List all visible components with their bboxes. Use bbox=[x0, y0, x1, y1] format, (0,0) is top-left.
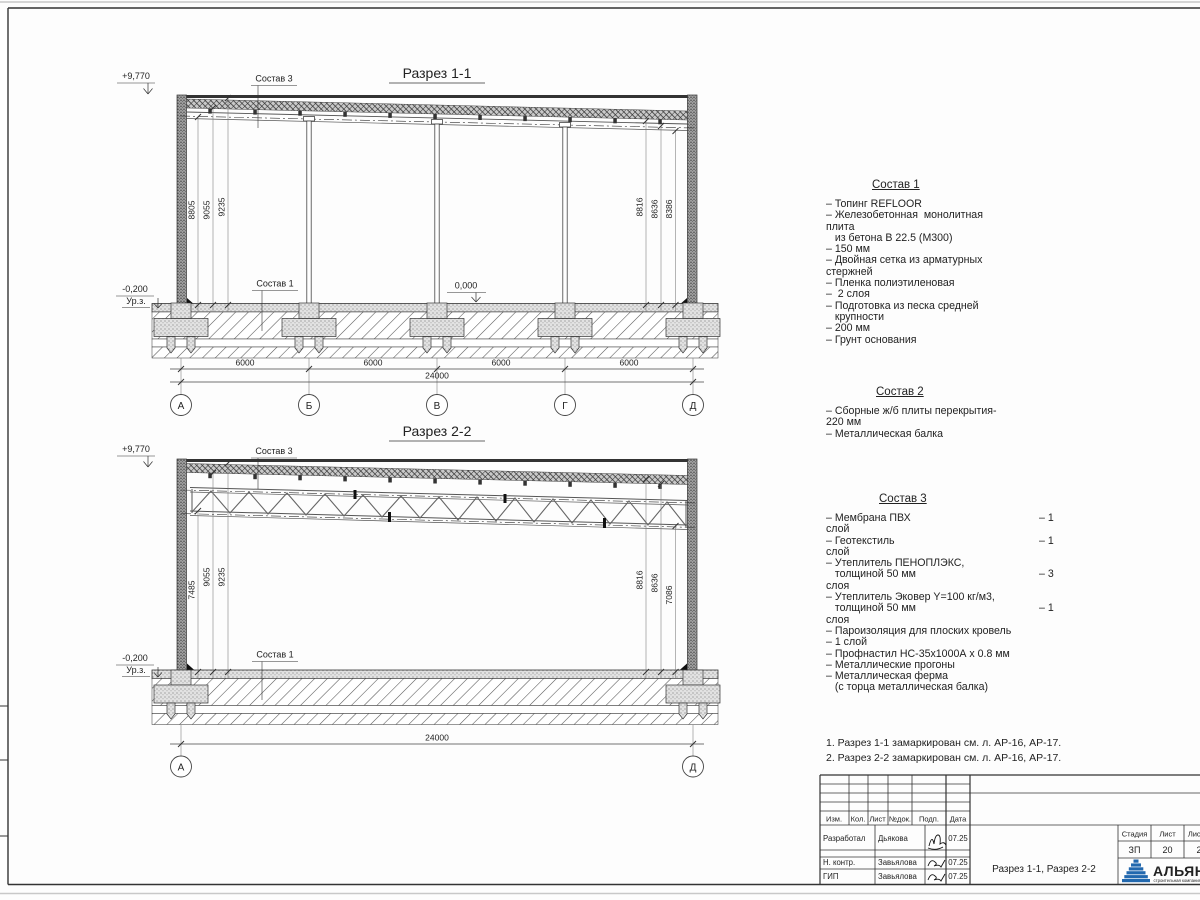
col-izm: Изм. bbox=[826, 815, 842, 824]
roof-slab bbox=[187, 99, 688, 120]
composition-line: – Железобетонная монолитная bbox=[826, 210, 1058, 221]
sostav-3-heading: Состав 3 bbox=[826, 493, 1058, 505]
row1-date: 07.25 bbox=[948, 834, 968, 843]
elev-top-mark: +9,770 bbox=[122, 444, 150, 454]
span-dim-2: 6000 bbox=[364, 358, 383, 368]
dim-left-2: 9055 bbox=[202, 200, 212, 219]
sostav-1-block: Состав 1 – Топинг REFLOOR– Железобетонна… bbox=[826, 179, 1058, 346]
sostav-2-lines: – Сборные ж/б плиты перекрытия-220 мм– М… bbox=[826, 406, 1058, 440]
sheet-canvas: Разрез 1-1 bbox=[0, 0, 1200, 900]
axis-v: В bbox=[434, 401, 441, 412]
section2-callouts: Состав 3 Состав 1 bbox=[251, 446, 298, 700]
composition-line: – Геотекстиль– 1 bbox=[826, 536, 1058, 547]
sostav3-callout: Состав 3 bbox=[255, 446, 292, 456]
row3-role: ГИП bbox=[823, 872, 838, 881]
total-dim: 24000 bbox=[425, 371, 449, 381]
section1-building bbox=[177, 95, 697, 310]
row3-name: Завьялова bbox=[878, 872, 917, 881]
ground-level-label: Ур.з. bbox=[126, 665, 145, 675]
section2-grid-axes: А Д bbox=[171, 756, 704, 777]
sostav-1-lines: – Топинг REFLOOR– Железобетонная монолит… bbox=[826, 199, 1058, 346]
sostav1-callout: Состав 1 bbox=[256, 279, 293, 289]
span-dim-4: 6000 bbox=[620, 358, 639, 368]
section-1-1: Разрез 1-1 bbox=[116, 65, 720, 416]
axis-a: А bbox=[178, 763, 185, 774]
section2-ground bbox=[152, 670, 720, 725]
dim-right-2: 8636 bbox=[650, 573, 660, 592]
dim-left-1: 8805 bbox=[187, 200, 197, 219]
composition-line: – Мембрана ПВХ– 1 bbox=[826, 513, 1058, 524]
sostav1-callout: Состав 1 bbox=[256, 650, 293, 660]
section1-bottom-dims: 6000 6000 6000 6000 24000 bbox=[170, 358, 704, 395]
row2-name: Завьялова bbox=[878, 858, 917, 867]
steel-truss bbox=[181, 488, 695, 530]
floor-slab bbox=[152, 670, 718, 679]
sostav-2-block: Состав 2 – Сборные ж/б плиты перекрытия-… bbox=[826, 386, 1058, 440]
composition-line: толщиной 50 мм– 1 bbox=[826, 603, 1058, 614]
dim-right-1: 8816 bbox=[635, 570, 645, 589]
section2-building bbox=[177, 459, 697, 676]
dim-left-3: 9235 bbox=[217, 197, 227, 216]
section2-bottom-dims: 24000 bbox=[170, 725, 704, 756]
wall-right bbox=[688, 459, 698, 676]
dim-right-3: 7086 bbox=[664, 585, 674, 604]
section1-ground bbox=[152, 303, 720, 358]
sheet-header: Лист bbox=[1159, 830, 1176, 839]
axis-g: Г bbox=[562, 401, 568, 412]
wall-right bbox=[688, 95, 698, 310]
signature-row3 bbox=[928, 874, 945, 881]
elev-minus-mark: -0,200 bbox=[122, 284, 148, 294]
row2-role: Н. контр. bbox=[823, 858, 855, 867]
company-logo-text: АЛЬЯНС bbox=[1153, 863, 1200, 879]
axis-d: Д bbox=[690, 401, 697, 412]
section2-elevations: +9,770 -0,200 Ур.з. bbox=[116, 444, 162, 677]
section2-title: Разрез 2-2 bbox=[403, 423, 472, 439]
sostav-3-lines: – Мембрана ПВХ– 1слой– Геотекстиль– 1сло… bbox=[826, 513, 1058, 694]
roof-slab bbox=[187, 464, 688, 485]
row1-role: Разработал bbox=[823, 834, 866, 843]
col-kol: Кол. bbox=[851, 815, 866, 824]
section-2-2: Разрез 2-2 bbox=[116, 423, 720, 777]
document-title: Разрез 1-1, Разрез 2-2 bbox=[992, 864, 1096, 875]
drawing-sheet: Разрез 1-1 bbox=[0, 0, 1200, 900]
dim-left-1: 7485 bbox=[187, 580, 197, 599]
company-logo-icon bbox=[1122, 860, 1150, 883]
col-list: Лист bbox=[869, 815, 886, 824]
elev-zero-mark: 0,000 bbox=[455, 281, 478, 291]
stage-header: Стадия bbox=[1122, 830, 1148, 839]
composition-line: – Грунт основания bbox=[826, 335, 1058, 346]
col-podp: Подп. bbox=[919, 815, 939, 824]
section1-grid-axes: А Б В Г Д bbox=[171, 395, 704, 416]
col-ndok: №док. bbox=[889, 815, 911, 824]
row1-name: Дьякова bbox=[878, 834, 908, 843]
sostav3-callout: Состав 3 bbox=[255, 74, 292, 84]
axis-b: Б bbox=[306, 401, 313, 412]
section2-vertical-dims bbox=[198, 463, 676, 678]
sheets-value: 2 bbox=[1196, 845, 1200, 855]
dim-left-3: 9235 bbox=[217, 567, 227, 586]
ground-level-label: Ур.з. bbox=[126, 296, 145, 306]
title-block: Изм. Кол. Лист №док. Подп. Дата Разработ… bbox=[820, 775, 1200, 885]
span-dim-3: 6000 bbox=[492, 358, 511, 368]
axis-a: А bbox=[178, 401, 185, 412]
interior-columns bbox=[304, 117, 571, 306]
signature-row1 bbox=[928, 835, 946, 849]
composition-line: – Металлическая балка bbox=[826, 429, 1058, 440]
sostav-3-block: Состав 3 – Мембрана ПВХ– 1слой– Геотекст… bbox=[826, 493, 1058, 694]
note-line-2: 2. Разрез 2-2 замаркирован см. л. АР-16,… bbox=[826, 751, 1061, 766]
row2-date: 07.25 bbox=[948, 858, 968, 867]
composition-line: толщиной 50 мм– 3 bbox=[826, 569, 1058, 580]
elev-top-mark: +9,770 bbox=[122, 71, 150, 81]
total-dim: 24000 bbox=[425, 733, 449, 743]
wall-left bbox=[177, 459, 187, 676]
elev-minus-mark: -0,200 bbox=[122, 653, 148, 663]
dim-right-2: 8636 bbox=[650, 199, 660, 218]
signature-row2 bbox=[928, 860, 945, 867]
sheet-notes: 1. Разрез 1-1 замаркирован см. л. АР-16,… bbox=[826, 736, 1061, 765]
wall-left bbox=[177, 95, 187, 310]
dim-left-2: 9055 bbox=[202, 567, 212, 586]
note-line-1: 1. Разрез 1-1 замаркирован см. л. АР-16,… bbox=[826, 736, 1061, 751]
sheet-value: 20 bbox=[1162, 845, 1172, 855]
sheets-header: Листов bbox=[1188, 830, 1200, 839]
axis-d: Д bbox=[690, 763, 697, 774]
company-logo-tagline: строительная компания bbox=[1154, 878, 1200, 883]
dim-right-1: 8816 bbox=[635, 197, 645, 216]
sostav-1-heading: Состав 1 bbox=[826, 179, 1058, 191]
section1-callouts: Состав 3 Состав 1 bbox=[251, 74, 298, 332]
row3-date: 07.25 bbox=[948, 872, 968, 881]
span-dim-1: 6000 bbox=[236, 358, 255, 368]
sostav-2-heading: Состав 2 bbox=[826, 386, 1058, 398]
stage-value: ЗП bbox=[1129, 845, 1141, 855]
col-data: Дата bbox=[950, 815, 967, 824]
section1-title: Разрез 1-1 bbox=[403, 65, 472, 81]
dim-right-3: 8386 bbox=[664, 199, 674, 218]
composition-line: (с торца металлическая балка) bbox=[826, 682, 1058, 693]
